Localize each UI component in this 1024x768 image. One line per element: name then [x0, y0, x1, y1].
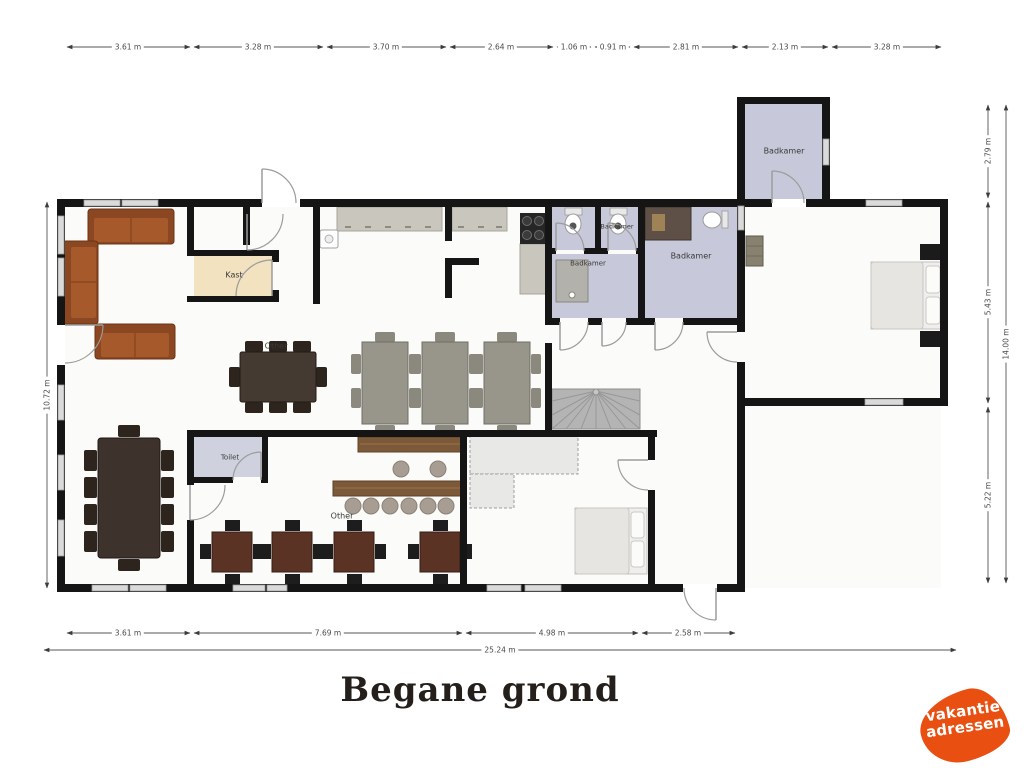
- dim-bottom-1: 3.61 m: [112, 629, 144, 638]
- dim-top-7: 2.81 m: [670, 43, 702, 52]
- stove: [520, 213, 546, 244]
- room-label-kast: Kast: [225, 271, 242, 280]
- dim-top-4: 2.64 m: [485, 43, 517, 52]
- bed-right: [871, 262, 942, 329]
- dining-table-other: [229, 341, 327, 413]
- dim-bottom-3: 4.98 m: [536, 629, 568, 638]
- dim-right-total: 14.00 m: [1002, 325, 1011, 362]
- closet: [746, 236, 763, 266]
- stairs: [552, 389, 640, 429]
- sofa-top: [88, 209, 174, 244]
- room-label-toilet: Toilet: [221, 454, 239, 463]
- vakantieadressen-logo: vakantie adressen: [916, 687, 1012, 765]
- toilet-fixture-a: [565, 208, 582, 234]
- dim-bottom-2: 7.69 m: [312, 629, 344, 638]
- room-label-badkamer-main: Badkamer: [671, 252, 712, 261]
- sauna: [645, 207, 691, 240]
- long-tables: [351, 332, 541, 435]
- dim-top-3: 3.70 m: [370, 43, 402, 52]
- dim-right-2: 5.43 m: [984, 286, 993, 318]
- dim-top-8: 2.13 m: [769, 43, 801, 52]
- floorplan-canvas: 3.61 m 3.28 m 3.70 m 2.64 m 1.06 m 0.91 …: [0, 0, 1024, 768]
- room-label-badkamer-shower: Badkamer: [570, 260, 606, 269]
- room-label-other-dining: Other: [265, 342, 288, 351]
- room-label-badkamer-annex: Badkamer: [764, 147, 805, 156]
- sofa-bottom: [95, 324, 175, 359]
- dim-top-6: 0.91 m: [597, 43, 629, 52]
- dim-left: 10.72 m: [43, 376, 52, 413]
- room-label-badkamer-top: Badkamer: [600, 223, 633, 232]
- dim-top-5: 1.06 m: [558, 43, 590, 52]
- room-label-other-bar: Other: [331, 512, 354, 521]
- dining-table-large: [84, 425, 174, 571]
- kitchen-sink: [320, 230, 338, 248]
- dim-bottom-4: 2.58 m: [672, 629, 704, 638]
- page-title: Begane grond: [340, 670, 619, 710]
- dim-right-1: 2.79 m: [984, 135, 993, 167]
- dim-top-1: 3.61 m: [112, 43, 144, 52]
- dim-top-2: 3.28 m: [242, 43, 274, 52]
- toilet-fixture-main: [703, 211, 728, 228]
- dim-top-9: 3.28 m: [871, 43, 903, 52]
- dim-bottom-total: 25.24 m: [481, 646, 518, 655]
- bed-bottom: [575, 508, 647, 574]
- dim-right-3: 5.22 m: [984, 479, 993, 511]
- sofa-left: [63, 241, 98, 324]
